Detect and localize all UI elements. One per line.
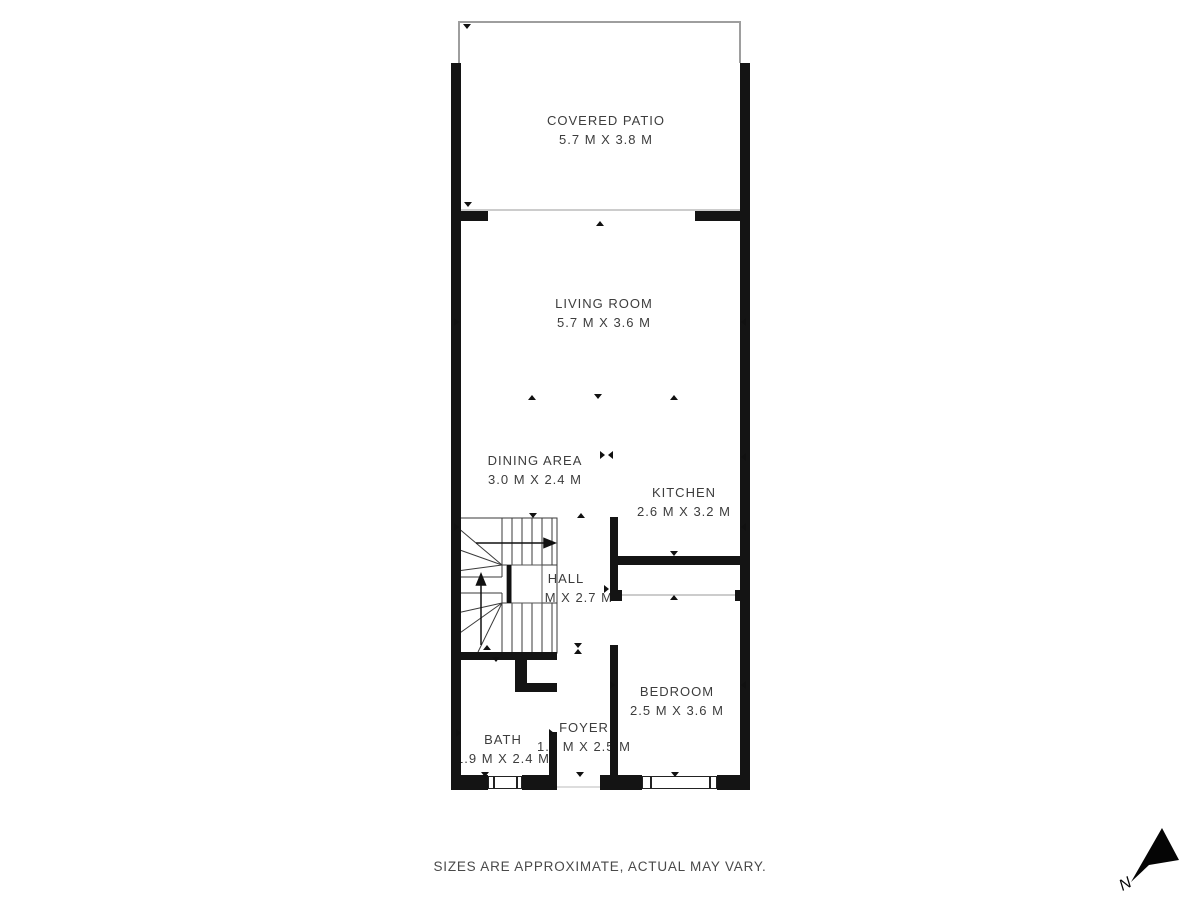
measure-marker	[456, 729, 461, 737]
wall-left-exterior	[451, 63, 461, 790]
wall-bottom-segment	[522, 775, 557, 790]
measure-marker	[454, 318, 459, 326]
measure-marker	[481, 772, 489, 777]
staircase	[456, 517, 558, 654]
measure-marker	[600, 451, 605, 459]
door-frame-marker	[549, 729, 554, 737]
window-mullion	[650, 777, 652, 788]
patio-outline-top	[458, 21, 741, 23]
wall-foyer-left	[549, 732, 557, 775]
patio-door-stub-right	[695, 211, 750, 221]
measure-marker	[576, 772, 584, 777]
entry-threshold-line	[557, 786, 600, 788]
room-label-covered-patio: COVERED PATIO 5.7 M X 3.8 M	[547, 112, 665, 149]
patio-door-stub-left	[451, 211, 488, 221]
measure-marker	[528, 395, 536, 400]
bath-window	[488, 776, 522, 789]
bedroom-opening-stub-left	[610, 590, 622, 601]
room-label-kitchen: KITCHEN 2.6 M X 3.2 M	[637, 484, 731, 521]
patio-outline-left	[458, 22, 460, 63]
disclaimer-text: SIZES ARE APPROXIMATE, ACTUAL MAY VARY.	[350, 859, 850, 874]
room-name: DINING AREA	[488, 452, 583, 471]
measure-marker	[463, 24, 471, 29]
measure-marker	[670, 551, 678, 556]
door-frame-marker	[604, 585, 609, 593]
room-dims: 2.6 M X 3.2 M	[637, 503, 731, 522]
room-label-living-room: LIVING ROOM 5.7 M X 3.6 M	[555, 295, 653, 332]
wall-bottom-segment	[451, 775, 488, 790]
room-label-bath: BATH 1.9 M X 2.4 M	[456, 731, 550, 768]
room-name: KITCHEN	[637, 484, 731, 503]
wall-closet-horizontal	[515, 683, 557, 692]
measure-marker	[741, 523, 746, 531]
window-mullion	[493, 777, 495, 788]
measure-marker	[741, 681, 746, 689]
north-arrow-icon: N	[1105, 815, 1195, 900]
measure-marker	[594, 394, 602, 399]
window-mullion	[516, 777, 518, 788]
measure-marker	[596, 221, 604, 226]
measure-marker	[741, 453, 746, 461]
compass-n-label: N	[1116, 874, 1135, 895]
door-frame-marker	[610, 681, 615, 689]
measure-marker	[529, 513, 537, 518]
bedroom-window	[642, 776, 717, 789]
room-label-dining-area: DINING AREA 3.0 M X 2.4 M	[488, 452, 583, 489]
measure-marker	[483, 645, 491, 650]
wall-bottom-segment	[717, 775, 750, 790]
room-name: COVERED PATIO	[547, 112, 665, 131]
measure-marker	[670, 595, 678, 600]
room-name: BEDROOM	[630, 683, 724, 702]
bedroom-opening-stub-right	[735, 590, 744, 601]
measure-marker	[608, 451, 613, 459]
measure-marker	[671, 772, 679, 777]
room-name: LIVING ROOM	[555, 295, 653, 314]
floor-plan: COVERED PATIO 5.7 M X 3.8 M LIVING ROOM …	[0, 0, 1200, 900]
window-mullion	[709, 777, 711, 788]
measure-marker	[574, 643, 582, 648]
measure-marker	[577, 513, 585, 518]
measure-marker	[464, 202, 472, 207]
room-dims: 5.7 M X 3.6 M	[555, 314, 653, 333]
patio-outline-right	[739, 22, 741, 63]
room-dims: 2.5 M X 3.6 M	[630, 702, 724, 721]
measure-marker	[741, 318, 746, 326]
room-dims: 3.0 M X 2.4 M	[488, 471, 583, 490]
room-dims: 1.9 M X 2.4 M	[456, 750, 550, 769]
measure-marker	[454, 523, 459, 531]
measure-marker	[574, 649, 582, 654]
measure-marker	[670, 395, 678, 400]
room-dims: 5.7 M X 3.8 M	[547, 131, 665, 150]
wall-stairs-bottom	[451, 652, 557, 660]
wall-bottom-segment	[600, 775, 642, 790]
room-name: BATH	[456, 731, 550, 750]
room-label-bedroom: BEDROOM 2.5 M X 3.6 M	[630, 683, 724, 720]
measure-marker	[492, 657, 500, 662]
wall-bedroom-left-lower	[610, 645, 618, 775]
wall-kitchen-bottom	[610, 556, 750, 565]
